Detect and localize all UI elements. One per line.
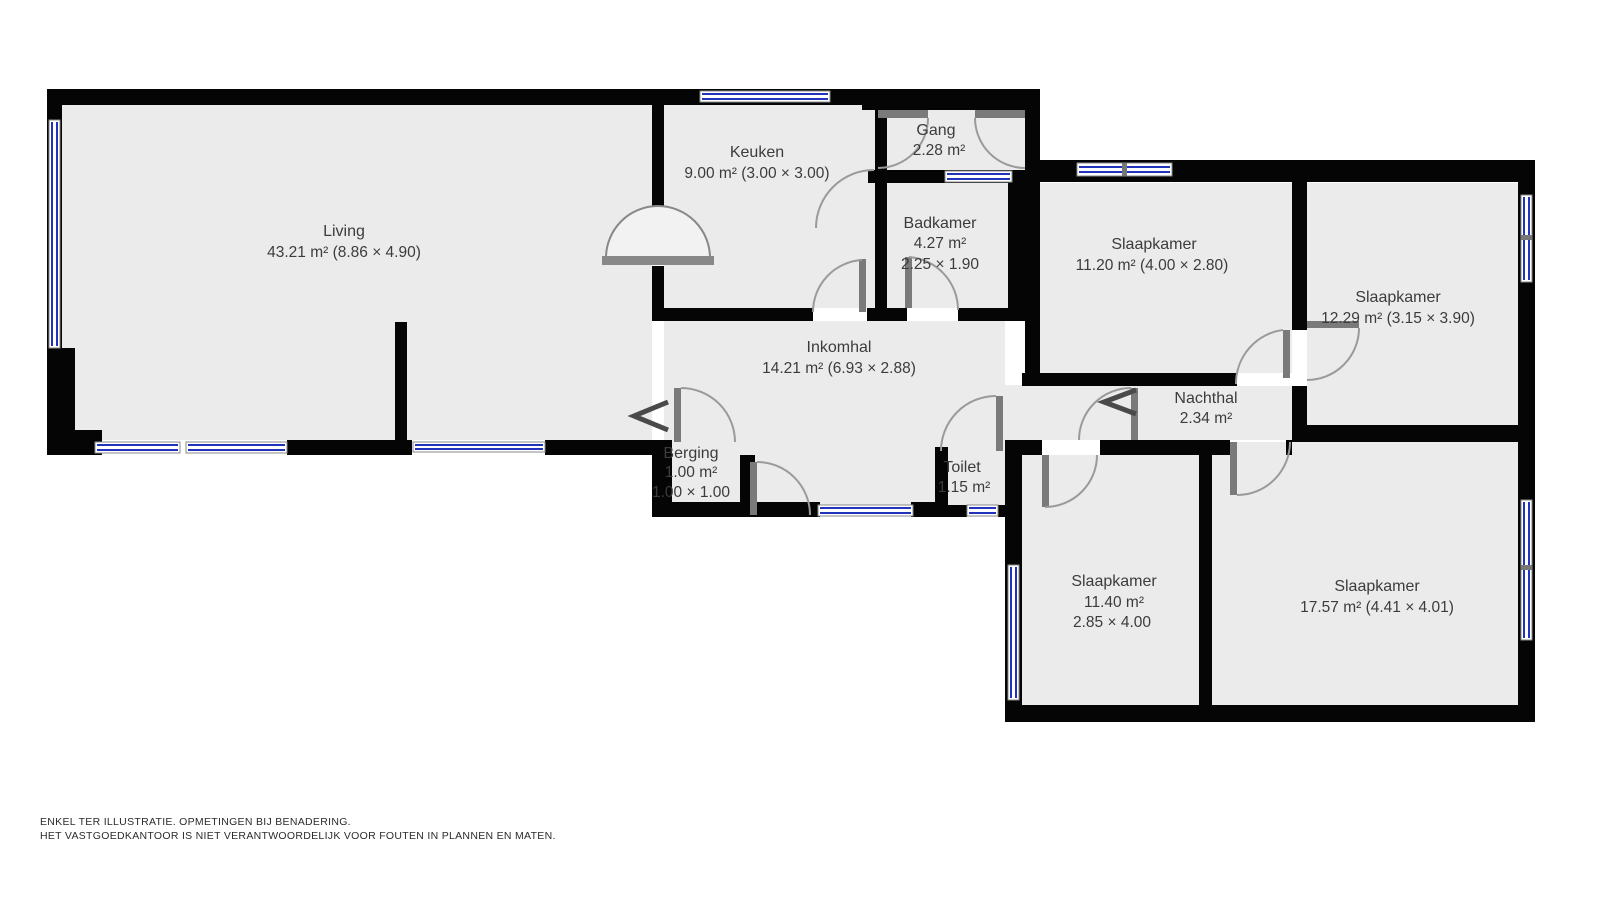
window-living-bottom-1: [95, 442, 180, 453]
wall-toilet-bottom-a: [935, 505, 967, 517]
svg-text:2.25 × 1.90: 2.25 × 1.90: [901, 256, 979, 273]
svg-text:11.20 m² (4.00 × 2.80): 11.20 m² (4.00 × 2.80): [1076, 257, 1229, 274]
window-living-bottom-3: [413, 442, 545, 452]
wall-front-door-header: [862, 89, 1040, 110]
wall-inkomhal-top-a: [652, 308, 813, 321]
svg-text:17.57 m² (4.41 × 4.01): 17.57 m² (4.41 × 4.01): [1300, 599, 1454, 616]
window-inkomhal-bottom: [818, 505, 913, 516]
disclaimer: ENKEL TER ILLUSTRATIE. OPMETINGEN BIJ BE…: [40, 816, 556, 842]
wall-toilet-bottom-b: [998, 505, 1022, 517]
svg-text:2.28 m²: 2.28 m²: [913, 142, 966, 159]
window-slaapkamer-se-right: [1521, 500, 1532, 640]
svg-text:14.21 m² (6.93 × 2.88): 14.21 m² (6.93 × 2.88): [762, 360, 916, 377]
room-slaapkamer-nw: [1040, 183, 1292, 373]
wall-under-slaapkamer-nw: [1022, 373, 1237, 386]
wall-living-stub: [395, 322, 407, 442]
svg-text:Badkamer: Badkamer: [904, 215, 978, 232]
wall-inkomhal-top-c: [958, 308, 1008, 321]
window-toilet-bottom: [967, 505, 998, 516]
wall-badkamer-left: [875, 183, 887, 308]
svg-text:Living: Living: [323, 223, 365, 240]
wall-bedroomblock-left: [1025, 160, 1040, 373]
svg-text:4.27 m²: 4.27 m²: [914, 235, 967, 252]
svg-text:2.85 × 4.00: 2.85 × 4.00: [1073, 614, 1151, 631]
wall-inkomhal-bottom-b: [911, 502, 937, 517]
wall-living-bottom-a: [47, 440, 95, 455]
wall-berging-bottom: [652, 502, 795, 517]
window-gang-badkamer: [945, 171, 1012, 182]
svg-text:9.00 m² (3.00 × 3.00): 9.00 m² (3.00 × 3.00): [684, 165, 829, 182]
wall-nw-ne-divider: [1292, 160, 1307, 330]
svg-text:1.00 m²: 1.00 m²: [665, 464, 718, 481]
wall-nachthal-bottom-a: [1212, 440, 1230, 455]
window-slaapkamer-nw-top: [1077, 163, 1172, 176]
window-slaapkamer-sw-left: [1008, 565, 1019, 700]
window-slaapkamer-ne-right: [1521, 195, 1532, 282]
room-living: [62, 104, 652, 440]
wall-living-bottom-b: [287, 440, 412, 455]
wall-inkomhal-top-b: [867, 308, 907, 321]
svg-text:Gang: Gang: [916, 122, 955, 139]
svg-text:Slaapkamer: Slaapkamer: [1111, 236, 1197, 253]
svg-text:Slaapkamer: Slaapkamer: [1355, 289, 1441, 306]
svg-text:43.21 m² (8.86 × 4.90): 43.21 m² (8.86 × 4.90): [267, 244, 421, 261]
wall-nachthal-right: [1292, 386, 1307, 425]
svg-text:Slaapkamer: Slaapkamer: [1071, 573, 1157, 590]
room-slaapkamer-se: [1212, 442, 1518, 705]
room-keuken: [664, 104, 875, 308]
window-keuken-top: [700, 91, 830, 102]
window-living-bottom-2: [186, 442, 287, 453]
svg-text:Nachthal: Nachthal: [1174, 390, 1237, 407]
wall-corridor-bottom-b: [1100, 440, 1212, 455]
svg-text:Berging: Berging: [663, 445, 718, 462]
wall-living-bottom-c: [545, 440, 667, 455]
svg-text:Inkomhal: Inkomhal: [807, 339, 872, 356]
wall-corridor-bottom-a: [1022, 440, 1042, 455]
wall-living-keuken-upper: [652, 104, 664, 214]
wall-bottom-right-block: [1005, 705, 1535, 722]
wall-sw-se-divider: [1199, 455, 1212, 705]
svg-text:Slaapkamer: Slaapkamer: [1334, 578, 1420, 595]
wall-ne-se-divider: [1292, 425, 1518, 442]
floor-plan: Living 43.21 m² (8.86 × 4.90) Keuken 9.0…: [0, 0, 1600, 900]
svg-text:Toilet: Toilet: [943, 459, 981, 476]
svg-text:12.29 m² (3.15 × 3.90): 12.29 m² (3.15 × 3.90): [1321, 310, 1475, 327]
disclaimer-line-2: HET VASTGOEDKANTOOR IS NIET VERANTWOORDE…: [40, 830, 556, 842]
disclaimer-line-1: ENKEL TER ILLUSTRATIE. OPMETINGEN BIJ BE…: [40, 816, 351, 828]
svg-text:1.15 m²: 1.15 m²: [938, 479, 991, 496]
svg-text:11.40 m²: 11.40 m²: [1084, 594, 1144, 611]
svg-text:1.00 × 1.00: 1.00 × 1.00: [652, 484, 730, 501]
svg-text:2.34 m²: 2.34 m²: [1180, 410, 1233, 427]
svg-text:Keuken: Keuken: [730, 144, 784, 161]
window-living-left: [49, 120, 60, 348]
wall-inkomhal-bottom-a: [795, 502, 820, 517]
room-toilet: [948, 447, 1005, 505]
wall-badkamer-right: [1008, 182, 1025, 321]
